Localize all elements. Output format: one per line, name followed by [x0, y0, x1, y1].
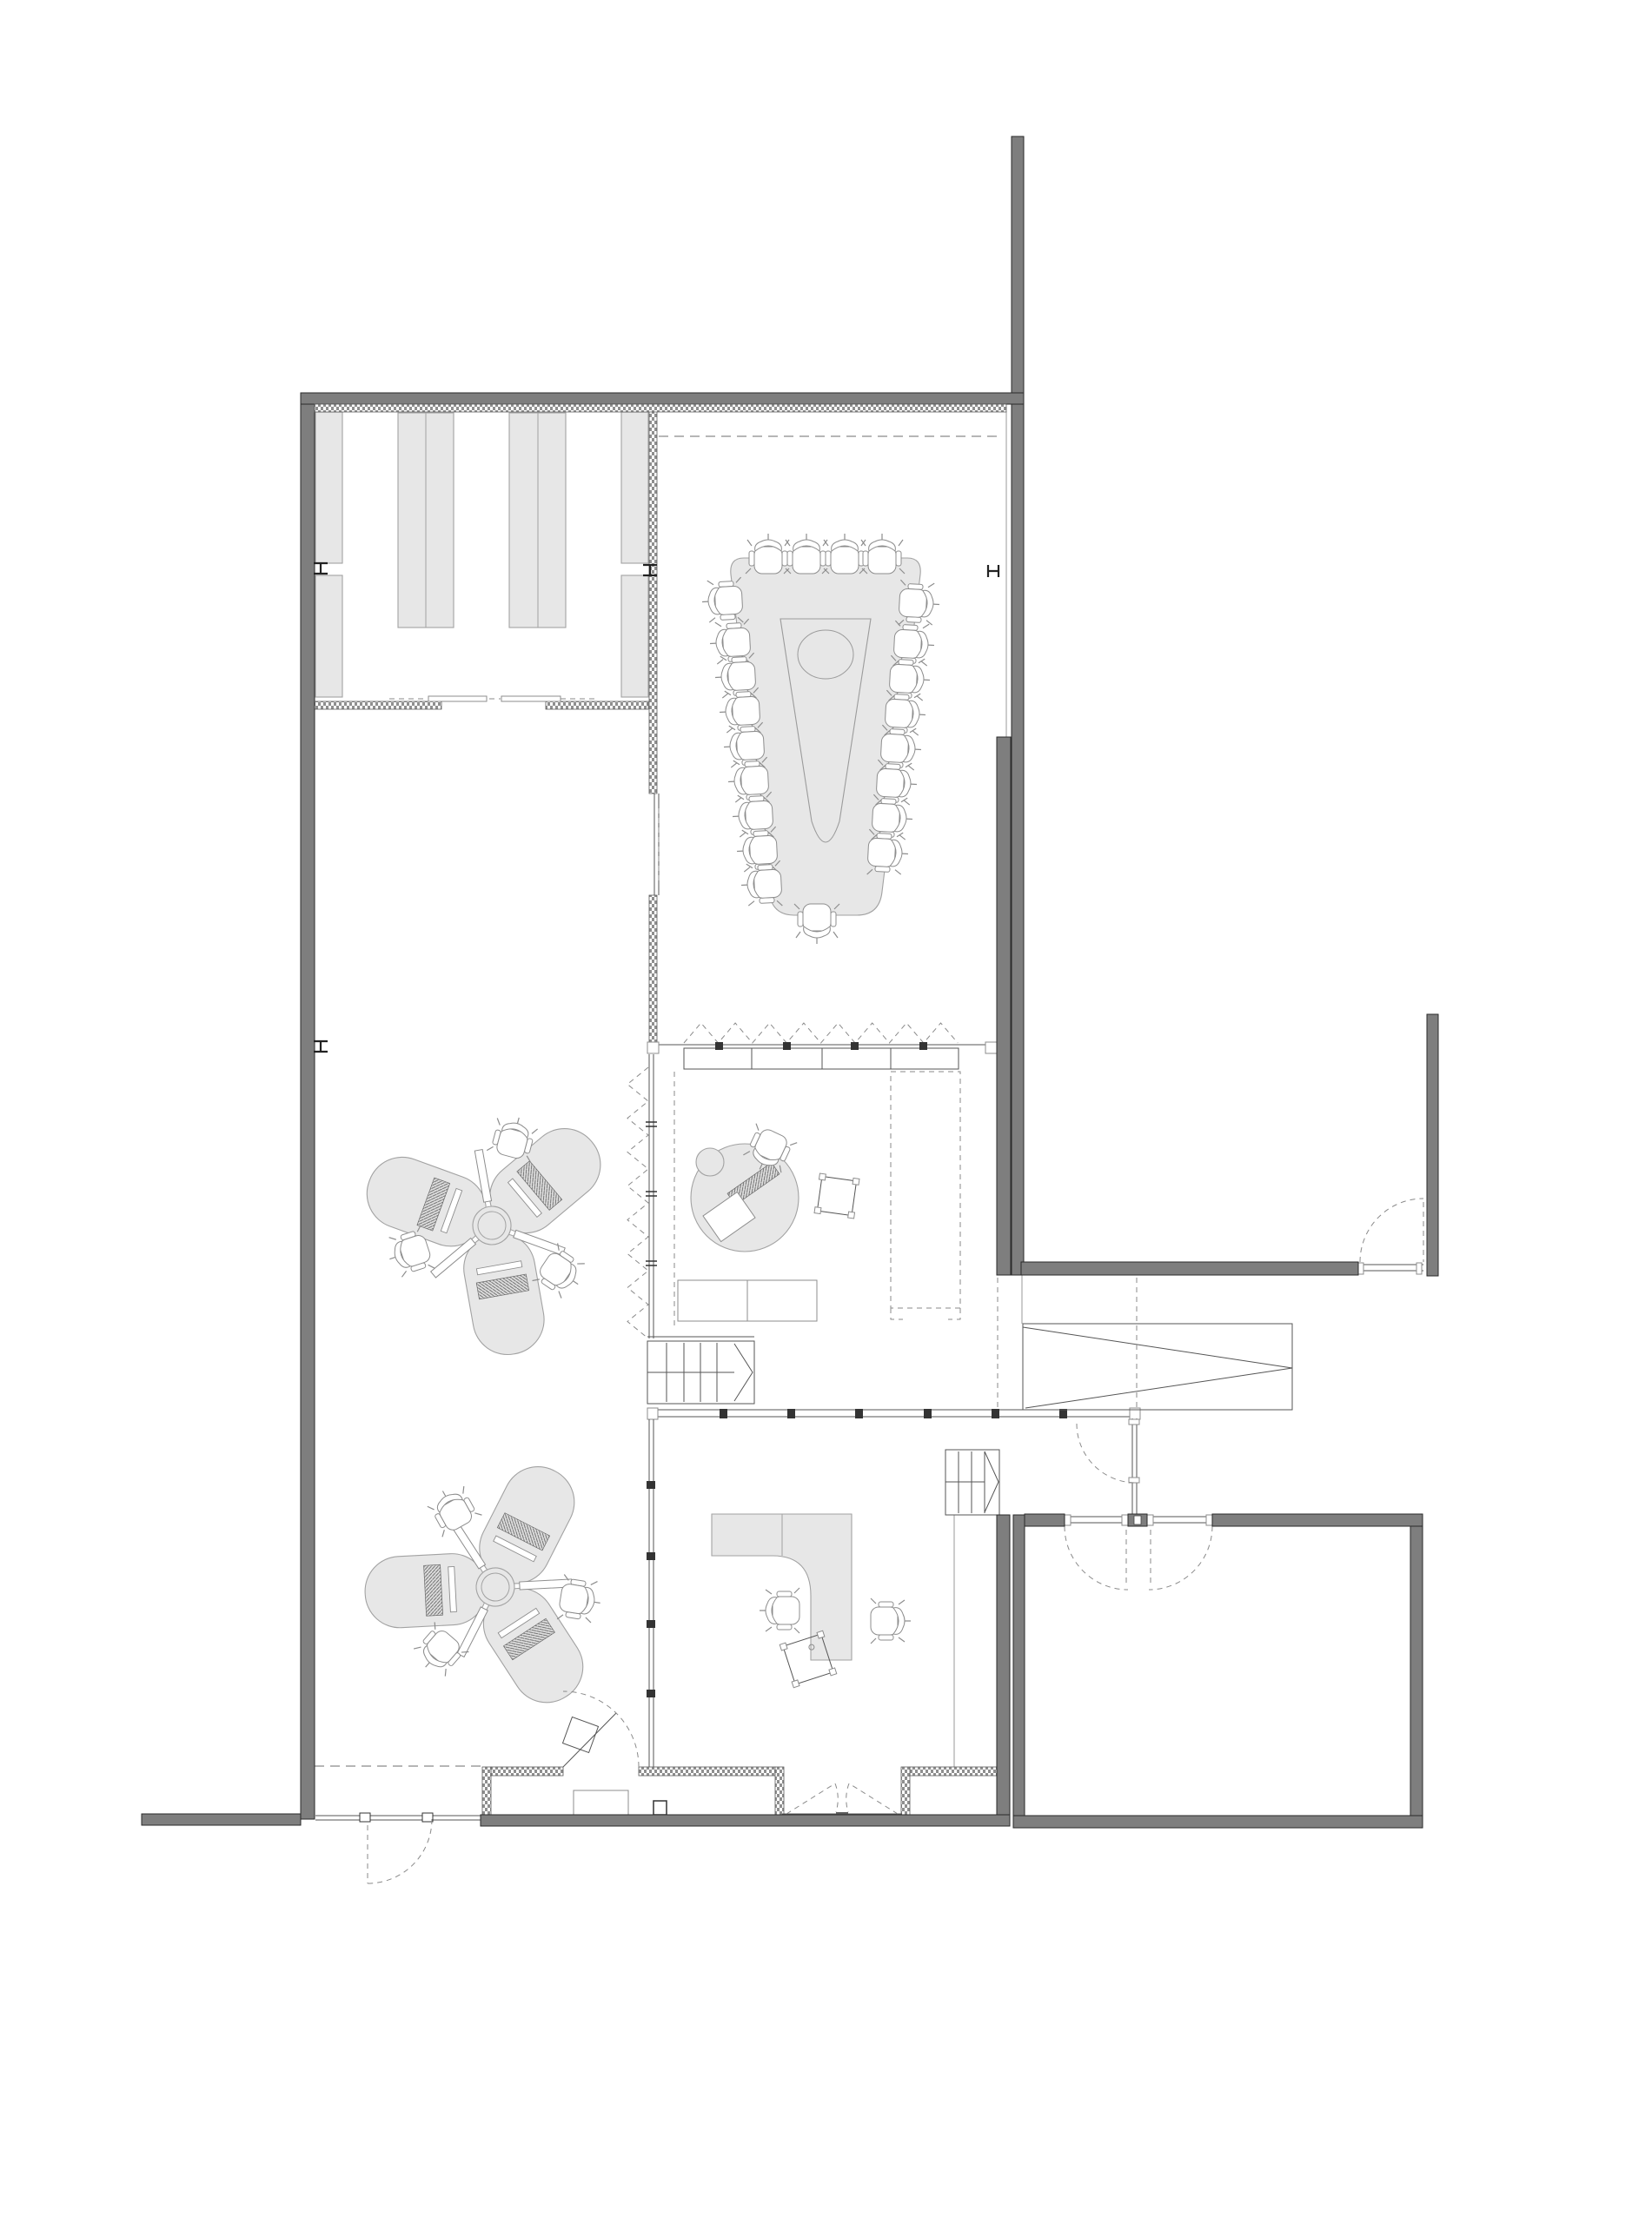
task-chair	[760, 1588, 799, 1633]
wall-top	[301, 393, 1024, 404]
door-leaf	[1126, 1530, 1151, 1587]
porch-door	[368, 1819, 432, 1883]
wall-left	[301, 404, 315, 1819]
insulation-strip-top	[315, 404, 1006, 412]
corridor-door	[1077, 1418, 1139, 1514]
shelf-unit	[315, 575, 342, 697]
wall-corridor	[997, 1515, 1010, 1817]
wall-far-right	[1427, 1014, 1438, 1276]
partition-wall	[649, 895, 657, 1043]
storage-room	[315, 412, 648, 709]
clover-desk-cluster	[335, 1041, 676, 1387]
floor-plan-page	[0, 0, 1652, 2225]
courtyard-door	[1358, 1199, 1423, 1274]
door-mat	[562, 1717, 598, 1752]
door-swing-arc	[1077, 1424, 1136, 1483]
wall-room-bottom	[1013, 1816, 1423, 1828]
panel-joints	[752, 1048, 891, 1069]
shelf-unit	[621, 575, 648, 697]
door-swing-arc	[1065, 1526, 1128, 1590]
wall-bottom-left-stub	[142, 1814, 301, 1825]
wall-right-liner	[997, 737, 1011, 1275]
door-swing-arc	[368, 1819, 432, 1883]
porch-glazing	[315, 1813, 481, 1822]
main-stairs	[647, 1337, 754, 1404]
lower-office	[712, 1514, 911, 1688]
glazed-panel	[654, 794, 659, 895]
sideboard	[678, 1280, 817, 1321]
counter	[574, 1790, 628, 1815]
shelf-unit-double	[509, 413, 566, 628]
interior-door	[563, 1691, 639, 1767]
partition-wall	[649, 404, 657, 794]
studio-workstations	[335, 1041, 676, 1731]
shelf-unit	[621, 412, 648, 563]
glass-wall-lower-office	[647, 1419, 655, 1767]
wall-room-top-b	[1212, 1514, 1423, 1526]
folding-partition-zigzag	[627, 1067, 648, 1338]
conference-room	[659, 411, 1006, 944]
ramp	[998, 1275, 1292, 1410]
sliding-door-panel	[501, 696, 561, 701]
wall-room-top-a	[1025, 1514, 1065, 1526]
movable-wall-parked	[891, 1072, 960, 1319]
folding-partition-zigzag	[684, 1023, 958, 1043]
shelf-unit-double	[398, 413, 454, 628]
task-chair	[871, 1598, 911, 1644]
shelf-unit	[315, 412, 342, 563]
wall-right-outer	[1012, 404, 1024, 1275]
door-swing-arc	[1360, 1199, 1423, 1262]
clover-desk-cluster	[335, 1411, 671, 1732]
wall-room-right	[1410, 1526, 1423, 1828]
ramp-joint-dashed	[998, 1278, 1137, 1408]
partition-wall	[315, 701, 441, 709]
door-swing-arc	[1149, 1526, 1212, 1590]
folded-panel-band	[684, 1048, 959, 1069]
small-stairs	[945, 1450, 999, 1515]
wall-room-left	[1013, 1515, 1025, 1828]
glass-ties	[646, 1122, 657, 1265]
column	[654, 1801, 667, 1815]
side-table	[814, 1173, 859, 1219]
partition-wall	[546, 701, 648, 709]
direction-chevron	[985, 1451, 998, 1512]
wall-top-stub	[1012, 136, 1024, 393]
meeting-room	[678, 1124, 859, 1321]
wall-bottom-center	[481, 1815, 1010, 1826]
direction-chevron	[734, 1344, 753, 1401]
wall-mid-right	[1021, 1262, 1358, 1275]
floor-plan-drawing	[0, 0, 1652, 2225]
stool	[696, 1148, 724, 1176]
walls	[142, 136, 1438, 1828]
entrance-vestibule	[315, 1691, 997, 1883]
sliding-door-panel	[428, 696, 487, 701]
